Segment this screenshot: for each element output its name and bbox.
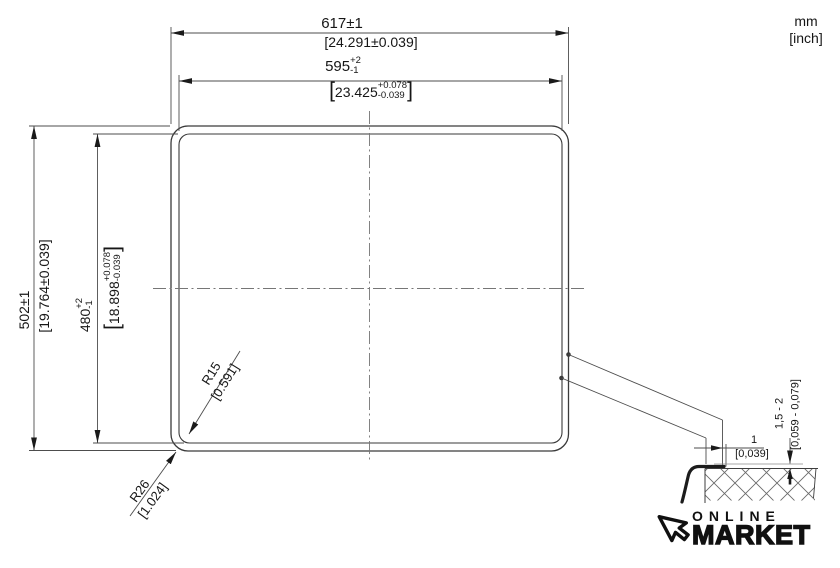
units-imperial: [inch] [771,30,840,47]
dim-inner-width-inch: [ 23.425+0.078-0.039 ] [221,80,521,104]
dim-inner-height-mm: 480+2-1 [76,215,94,415]
rim-height-inch: [0,059 - 0,079] [791,350,804,480]
dim-inner-height-inch: [ 18.898+0.078-0.039 ] [102,178,126,398]
detail-leaders [559,352,722,438]
units-note: mm [inch] [771,13,840,47]
dim-outer-width-mm: 617±1 [192,16,492,32]
technical-drawing-sheet: mm [inch] 617±1 [24.291±0.039] 595+2-1 [… [0,0,840,568]
rim-height-mm: 1,5 - 2 [775,359,788,469]
bracket-open: [ [329,82,335,101]
dim-outer-height-inch: [19.764±0.039] [37,186,55,386]
centerlines [153,111,584,463]
units-metric: mm [771,13,840,30]
bracket-open: [ [104,324,123,330]
bracket-close: ] [407,82,413,101]
dim-outer-width-inch: [24.291±0.039] [221,35,521,50]
bracket-close: ] [104,246,123,252]
dim-inner-width-mm: 595+2-1 [193,57,493,78]
dim-outer-height-mm: 502±1 [17,210,35,410]
rim-gap-inch: [0,039] [722,449,782,461]
logo-line2: MARKET [692,523,811,548]
logo: ONLINE MARKET [656,502,836,564]
